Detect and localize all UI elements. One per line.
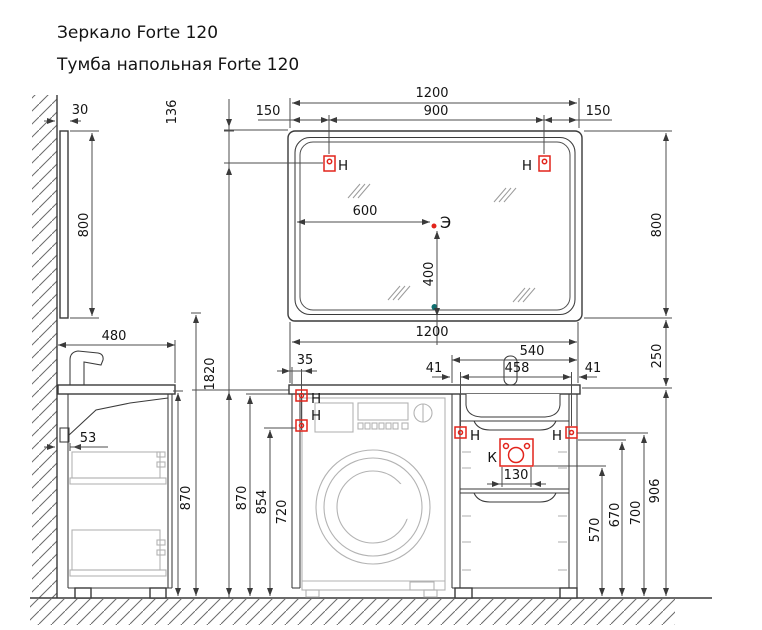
dim-hook-drop: 136 [165,100,180,125]
hook-label: Н [311,408,321,424]
dim-hook-low: 720 [275,500,290,525]
hook-label: Н [311,391,321,407]
dim-drawer-top: 570 [588,518,603,543]
drain-label: К [487,450,497,466]
washing-machine [302,398,445,597]
hook-label: Н [522,158,532,174]
dim-drain-width: 130 [504,468,529,483]
dim-mirror-width: 1200 [415,86,448,101]
drawer2-handle-recess [474,493,556,502]
hook-label: Н [338,158,348,174]
washer-display [358,403,408,420]
dim-apron: 670 [608,503,623,528]
cabinet-front-view: Н Н Н Н К [289,356,580,598]
dim-wall-gap: 53 [80,431,97,446]
leg [560,588,577,598]
dim-washbasin-width: 540 [520,344,545,359]
dim-hook-offset: 35 [297,353,314,368]
dim-center-x: 600 [353,204,378,219]
leg [455,588,472,598]
drawer1-handle-recess [474,421,556,430]
dim-hook-left: 150 [256,104,281,119]
wall-hatch [32,95,57,598]
dim-hook-right: 150 [586,104,611,119]
cabinet-dimensions: 1200 35 540 41 458 41 130 570 670 [277,322,648,596]
dim-margin-left: 41 [426,361,443,376]
cab-hook-hole [570,431,574,435]
electric-point-dot [432,224,437,229]
technical-drawing-canvas: Зеркало Forte 120 Тумба напольная Forte … [0,0,762,630]
leg [75,588,91,598]
title-cabinet: Тумба напольная Forte 120 [56,55,299,75]
hook-label: Н [552,428,562,444]
dim-cab-height-side: 870 [179,486,194,511]
side-internal-drawers [60,428,166,576]
sink-bowl-front [466,394,560,417]
faucet-side [70,351,103,385]
dim-mirror-height-side: 800 [77,213,92,238]
leg [150,588,166,598]
dim-counter-top-height: 906 [648,479,663,504]
countertop-front [289,385,580,394]
dim-gap: 250 [650,344,665,369]
washer-body [302,398,445,590]
dim-cab-width: 1200 [415,325,448,340]
drawing-page: Зеркало Forte 120 Тумба напольная Forte … [0,0,762,630]
cab-hook-right-b [566,427,577,438]
dim-mirror-depth: 30 [72,103,89,118]
cabinet-side-view: 480 53 870 [44,329,194,598]
dim-hook-front: 700 [629,501,644,526]
dim-hook-span: 900 [424,104,449,119]
title-mirror: Зеркало Forte 120 [57,23,218,43]
floor-hatch [30,599,675,625]
electric-label: Э [440,213,451,232]
drawer-section [452,394,577,598]
mirror-profile [60,131,68,318]
dim-margin-right: 41 [585,361,602,376]
dim-cab-height: 870 [235,486,250,511]
hook-label: Н [470,428,480,444]
wall-section [32,95,57,598]
dim-drain-span: 458 [505,361,530,376]
dim-center-y: 400 [422,262,437,287]
drain-plate: К [487,439,533,466]
left-dimension-chain: 1820 870 854 720 [191,313,296,596]
dim-mirror-height-right: 800 [650,213,665,238]
countertop-side [58,385,175,394]
floor-section [30,598,712,625]
dim-total-height: 1820 [203,357,218,390]
dim-counter-under: 854 [255,490,270,515]
dim-cab-depth: 480 [102,329,127,344]
